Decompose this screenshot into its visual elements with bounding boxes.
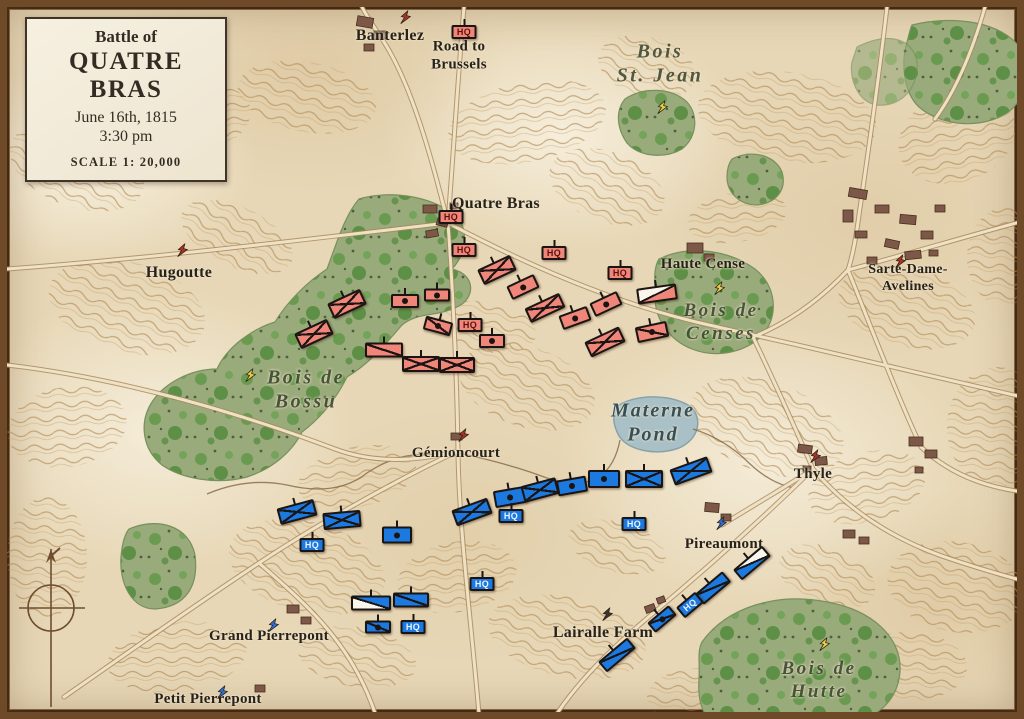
unit-red-artillery: [506, 274, 540, 300]
unit-blue-horse-artillery: [647, 605, 677, 633]
unit-blue-artillery: [382, 527, 412, 544]
unit-red-headquarters: HQ: [452, 243, 477, 257]
unit-blue-cavalry: [598, 637, 636, 672]
unit-red-cavalry-half: [636, 283, 678, 304]
unit-red-infantry: [477, 255, 517, 286]
unit-blue-horse-artillery: [365, 621, 391, 634]
unit-blue-cavalry-half: [733, 545, 771, 580]
unit-red-horse-artillery: [423, 316, 454, 337]
unit-blue-artillery: [588, 470, 620, 488]
battle-date: June 16th, 1815: [37, 109, 215, 127]
unit-blue-headquarters: HQ: [470, 577, 495, 591]
unit-red-headquarters: HQ: [542, 246, 567, 260]
unit-blue-headquarters: HQ: [300, 538, 325, 552]
unit-blue-cavalry: [393, 593, 429, 608]
unit-red-headquarters: HQ: [608, 266, 633, 280]
unit-red-infantry: [294, 319, 334, 350]
unit-red-infantry: [327, 289, 367, 320]
unit-red-artillery: [558, 306, 591, 330]
unit-red-headquarters: HQ: [452, 25, 477, 39]
unit-red-artillery: [424, 289, 450, 302]
battle-pretitle: Battle of: [37, 27, 215, 47]
unit-red-artillery: [589, 291, 623, 317]
map-scale: SCALE 1: 20,000: [37, 155, 215, 170]
unit-blue-infantry: [625, 470, 663, 488]
unit-red-artillery: [479, 334, 505, 348]
unit-blue-infantry: [520, 477, 559, 503]
unit-blue-headquarters: HQ: [499, 509, 524, 523]
unit-red-cavalry: [365, 343, 403, 358]
unit-blue-infantry: [451, 498, 493, 527]
title-cartouche: Battle of QUATRE BRAS June 16th, 1815 3:…: [25, 17, 227, 182]
battle-title: QUATRE BRAS: [37, 48, 215, 104]
unit-red-infantry: [439, 357, 475, 373]
unit-blue-cavalry-half: [351, 596, 391, 611]
unit-blue-headquarters: HQ: [622, 517, 647, 531]
unit-blue-infantry: [322, 510, 361, 530]
unit-blue-headquarters: HQ: [401, 620, 426, 634]
unit-blue-infantry: [276, 499, 317, 525]
unit-red-horse-artillery: [635, 321, 670, 343]
unit-blue-infantry: [669, 456, 712, 486]
unit-red-artillery: [391, 294, 419, 308]
unit-blue-artillery: [556, 476, 588, 497]
battle-map: BanterlezRoad to BrusselsBois St. JeanQu…: [0, 0, 1024, 719]
unit-red-headquarters: HQ: [439, 210, 464, 224]
battle-time: 3:30 pm: [37, 128, 215, 146]
unit-red-infantry: [584, 326, 626, 357]
unit-red-infantry: [402, 356, 440, 372]
unit-red-headquarters: HQ: [458, 318, 483, 332]
